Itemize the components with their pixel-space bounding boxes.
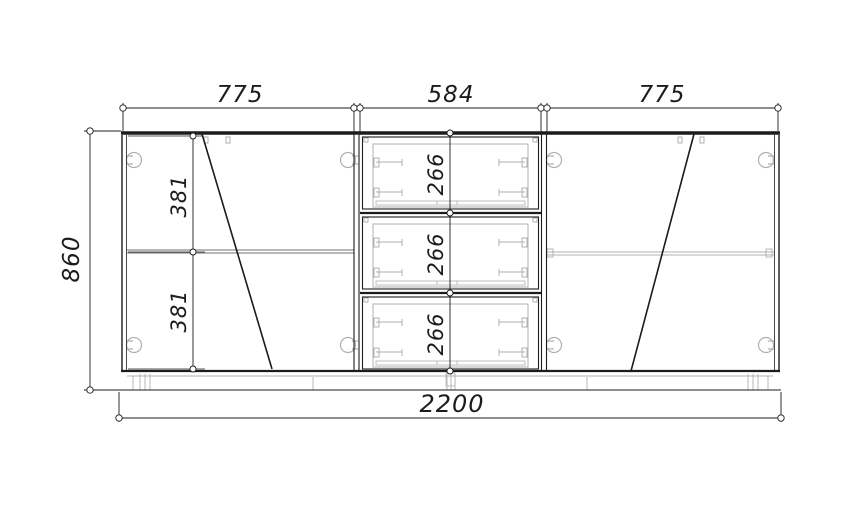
divider-right (542, 135, 547, 371)
divider-left (354, 135, 359, 371)
dim-label-top-right: 775 (639, 82, 686, 108)
dim-label-shelf-top: 381 (167, 174, 191, 217)
dim-label-drawer-3: 266 (424, 312, 448, 355)
dim-label-shelf-bottom: 381 (167, 289, 191, 332)
technical-drawing-canvas: 775 584 775 860 381 381 266 266 266 2200 (0, 0, 856, 514)
dim-label-drawer-1: 266 (424, 152, 448, 195)
door-swing-line-left (202, 134, 272, 369)
dim-label-width-overall: 2200 (419, 390, 484, 418)
dim-label-top-middle: 584 (428, 82, 475, 108)
drawing-sheet: 775 584 775 860 381 381 266 266 266 2200 (0, 0, 856, 514)
dim-label-height-overall: 860 (59, 236, 85, 283)
drawer-box-1 (364, 138, 537, 207)
shelf-right (547, 249, 774, 257)
drawer-front-1 (363, 137, 539, 209)
shelf-left (127, 250, 354, 253)
door-swing-line-right (631, 134, 694, 371)
plinth-and-legs (127, 373, 773, 390)
drawer-box-3 (364, 298, 537, 367)
dim-label-top-left: 775 (217, 82, 264, 108)
drawer-front-2 (363, 217, 539, 289)
cam-fitting-marks (204, 137, 704, 143)
dimension-left-shelves (128, 133, 205, 372)
drawer-front-3 (363, 297, 539, 369)
dim-label-drawer-2: 266 (424, 232, 448, 275)
dimension-height-overall (84, 128, 121, 393)
drawer-box-2 (364, 218, 537, 287)
